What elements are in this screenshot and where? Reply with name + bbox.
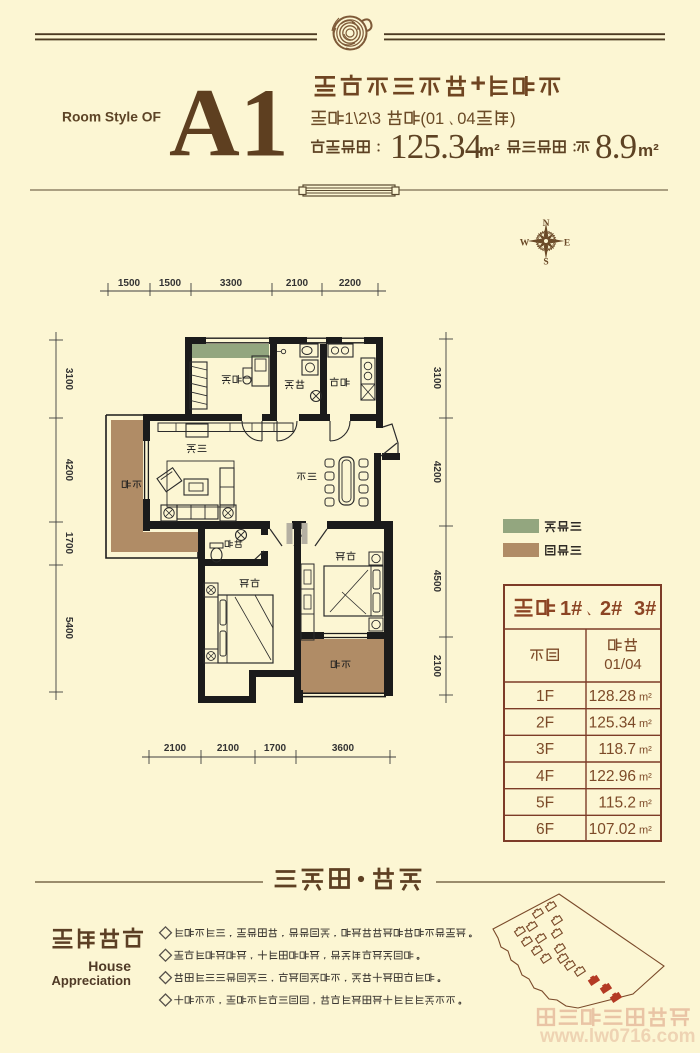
- svg-text:8.9: 8.9: [595, 127, 637, 166]
- svg-text:m²: m²: [639, 718, 652, 730]
- svg-text:1#: 1#: [560, 598, 582, 620]
- svg-text:128.28: 128.28: [589, 688, 636, 705]
- svg-text:125.34: 125.34: [390, 127, 482, 166]
- svg-text:5F: 5F: [536, 794, 554, 811]
- svg-text:1700: 1700: [264, 743, 287, 754]
- svg-text:1F: 1F: [536, 688, 554, 705]
- svg-text:1500: 1500: [118, 278, 141, 289]
- svg-text:E: E: [564, 239, 570, 249]
- svg-text:4200: 4200: [63, 459, 74, 482]
- svg-text:1\2\3: 1\2\3: [344, 110, 381, 128]
- svg-text:6F: 6F: [536, 821, 554, 838]
- svg-text:(01: (01: [420, 110, 444, 128]
- svg-text:S: S: [543, 258, 548, 268]
- svg-text:m²: m²: [639, 825, 652, 837]
- svg-text:4F: 4F: [536, 768, 554, 785]
- svg-text:1700: 1700: [63, 532, 74, 555]
- svg-text:115.2: 115.2: [598, 794, 636, 811]
- svg-text:Appreciation: Appreciation: [52, 973, 132, 988]
- svg-text:+: +: [470, 68, 486, 98]
- svg-text:m²: m²: [638, 141, 659, 160]
- svg-text:118.7: 118.7: [598, 741, 636, 758]
- svg-text:www.lw0716.com: www.lw0716.com: [539, 1026, 696, 1047]
- svg-text:A1: A1: [169, 70, 289, 178]
- svg-text:m²: m²: [639, 798, 652, 810]
- svg-text:04: 04: [457, 110, 475, 128]
- svg-text:m²: m²: [639, 745, 652, 757]
- svg-text:2200: 2200: [339, 278, 362, 289]
- svg-text:107.02: 107.02: [589, 821, 636, 838]
- svg-text:122.96: 122.96: [589, 768, 636, 785]
- svg-text:4500: 4500: [431, 570, 442, 593]
- svg-text:1500: 1500: [159, 278, 182, 289]
- svg-text:3600: 3600: [332, 743, 355, 754]
- svg-text:3#: 3#: [634, 598, 656, 620]
- svg-text:W: W: [520, 239, 530, 249]
- svg-text:3100: 3100: [431, 367, 442, 390]
- svg-text:m²: m²: [639, 692, 652, 704]
- svg-text:2#: 2#: [600, 598, 622, 620]
- svg-text:2100: 2100: [164, 743, 187, 754]
- svg-text:Room Style OF: Room Style OF: [62, 110, 161, 125]
- svg-text:2100: 2100: [217, 743, 240, 754]
- svg-text:3100: 3100: [63, 368, 74, 391]
- svg-text:01/04: 01/04: [604, 656, 642, 673]
- svg-text:3300: 3300: [220, 278, 243, 289]
- svg-text:3F: 3F: [536, 741, 554, 758]
- svg-text:House: House: [88, 958, 131, 974]
- svg-text:): ): [510, 110, 515, 128]
- svg-text:m²: m²: [639, 771, 652, 783]
- svg-text:N: N: [543, 219, 550, 229]
- svg-text:125.34: 125.34: [589, 715, 637, 732]
- svg-text:m²: m²: [479, 141, 500, 160]
- svg-text:4200: 4200: [431, 461, 442, 484]
- svg-text:2F: 2F: [536, 715, 554, 732]
- svg-text:2100: 2100: [286, 278, 309, 289]
- svg-text:5400: 5400: [63, 617, 74, 640]
- svg-text:2100: 2100: [431, 655, 442, 678]
